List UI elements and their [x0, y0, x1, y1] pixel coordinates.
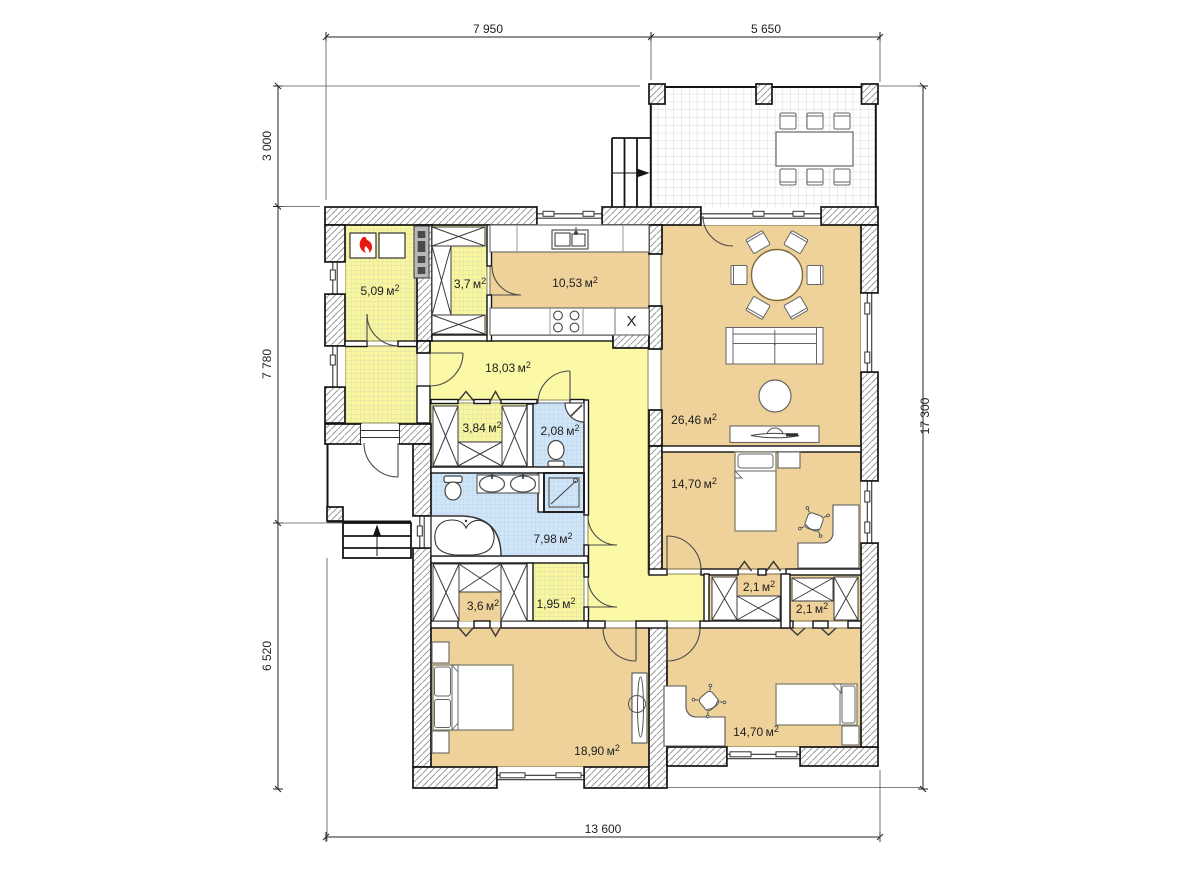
- svg-text:X: X: [626, 313, 636, 330]
- svg-text:1,95 м2: 1,95 м2: [536, 596, 575, 611]
- svg-text:7,98 м2: 7,98 м2: [533, 531, 572, 546]
- svg-text:3 000: 3 000: [260, 131, 274, 161]
- svg-text:5 650: 5 650: [751, 22, 781, 36]
- svg-text:5,09 м2: 5,09 м2: [360, 283, 399, 298]
- svg-text:7 780: 7 780: [260, 349, 274, 379]
- svg-text:14,70 м2: 14,70 м2: [671, 476, 717, 491]
- svg-text:13 600: 13 600: [585, 822, 622, 836]
- svg-text:3,84 м2: 3,84 м2: [462, 420, 501, 435]
- svg-text:26,46 м2: 26,46 м2: [671, 412, 717, 427]
- svg-text:7 950: 7 950: [473, 22, 503, 36]
- svg-text:14,70 м2: 14,70 м2: [733, 724, 779, 739]
- svg-text:18,03 м2: 18,03 м2: [485, 360, 531, 375]
- svg-text:18,90 м2: 18,90 м2: [574, 743, 620, 758]
- svg-text:10,53 м2: 10,53 м2: [552, 275, 598, 290]
- svg-text:6 520: 6 520: [260, 641, 274, 671]
- svg-text:2,08 м2: 2,08 м2: [540, 423, 579, 438]
- svg-text:17 300: 17 300: [918, 397, 932, 434]
